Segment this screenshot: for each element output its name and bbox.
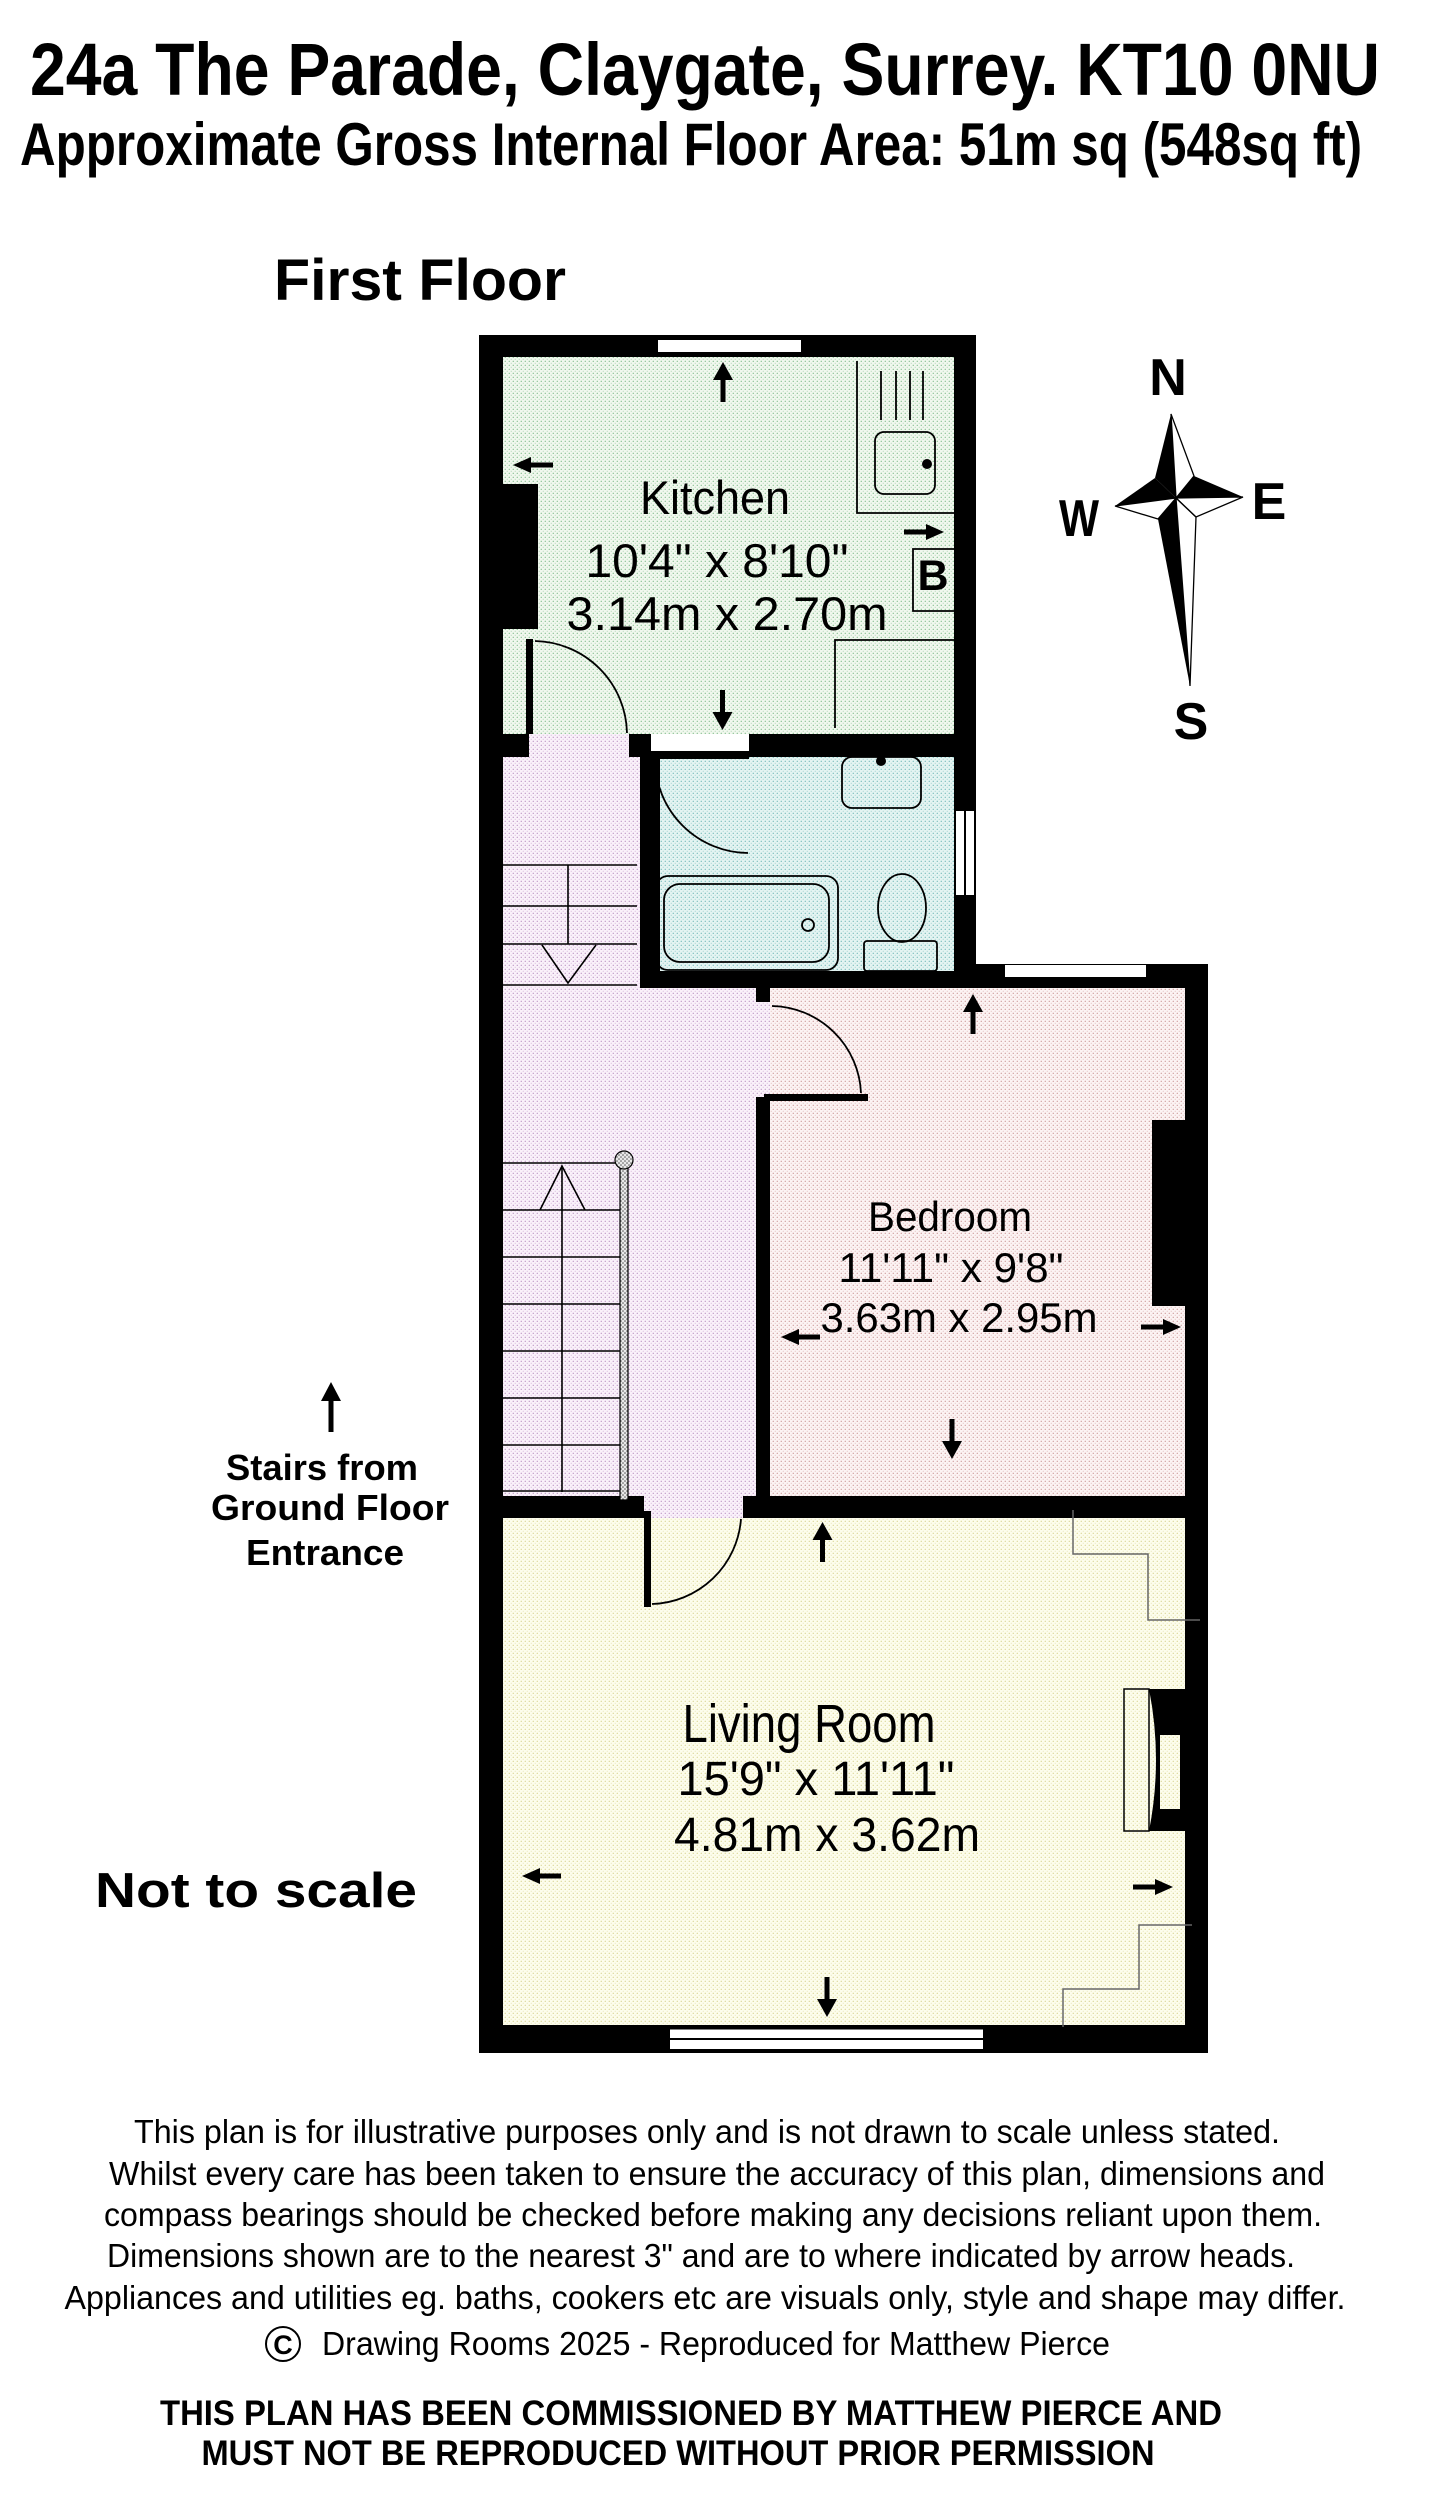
svg-text:E: E [1252,473,1287,531]
svg-text:Not to scale: Not to scale [95,1864,417,1918]
svg-text:THIS PLAN HAS BEEN COMMISSIONE: THIS PLAN HAS BEEN COMMISSIONED BY MATTH… [160,2394,1222,2433]
svg-text:First Floor: First Floor [274,248,566,313]
svg-text:MUST NOT BE REPRODUCED WITHOUT: MUST NOT BE REPRODUCED WITHOUT PRIOR PER… [202,2434,1155,2473]
svg-text:C: C [273,2330,293,2360]
svg-text:11'11" x 9'8": 11'11" x 9'8" [839,1244,1064,1291]
svg-text:Approximate Gross Internal Flo: Approximate Gross Internal Floor Area: 5… [20,111,1362,178]
svg-text:10'4" x 8'10": 10'4" x 8'10" [586,534,849,587]
svg-text:3.14m x 2.70m: 3.14m x 2.70m [567,587,888,640]
svg-text:Ground Floor: Ground Floor [211,1487,449,1528]
svg-text:3.63m x 2.95m: 3.63m x 2.95m [821,1294,1098,1341]
svg-text:compass bearings should be che: compass bearings should be checked befor… [104,2196,1322,2233]
svg-text:Appliances and utilities eg. b: Appliances and utilities eg. baths, cook… [65,2279,1346,2316]
svg-text:Kitchen: Kitchen [640,471,790,524]
svg-text:15'9" x 11'11": 15'9" x 11'11" [678,1753,955,1806]
svg-text:Drawing Rooms 2025 - Reproduce: Drawing Rooms 2025 - Reproduced for Matt… [322,2325,1110,2362]
svg-text:N: N [1149,349,1187,407]
svg-text:B: B [917,552,948,600]
svg-text:Living Room: Living Room [683,1694,936,1754]
svg-text:Whilst every care has been tak: Whilst every care has been taken to ensu… [109,2155,1325,2192]
svg-text:S: S [1174,693,1209,751]
svg-text:W: W [1059,490,1100,548]
svg-text:24a The Parade, Claygate, Surr: 24a The Parade, Claygate, Surrey. KT10 0… [30,28,1380,111]
svg-text:Stairs from: Stairs from [226,1447,418,1488]
svg-text:Entrance: Entrance [246,1532,404,1573]
svg-text:Dimensions shown are to the ne: Dimensions shown are to the nearest 3" a… [107,2237,1295,2274]
svg-text:4.81m x 3.62m: 4.81m x 3.62m [674,1809,980,1862]
svg-text:This plan is for illustrative: This plan is for illustrative purposes o… [134,2113,1280,2150]
svg-text:Bedroom: Bedroom [868,1193,1032,1240]
